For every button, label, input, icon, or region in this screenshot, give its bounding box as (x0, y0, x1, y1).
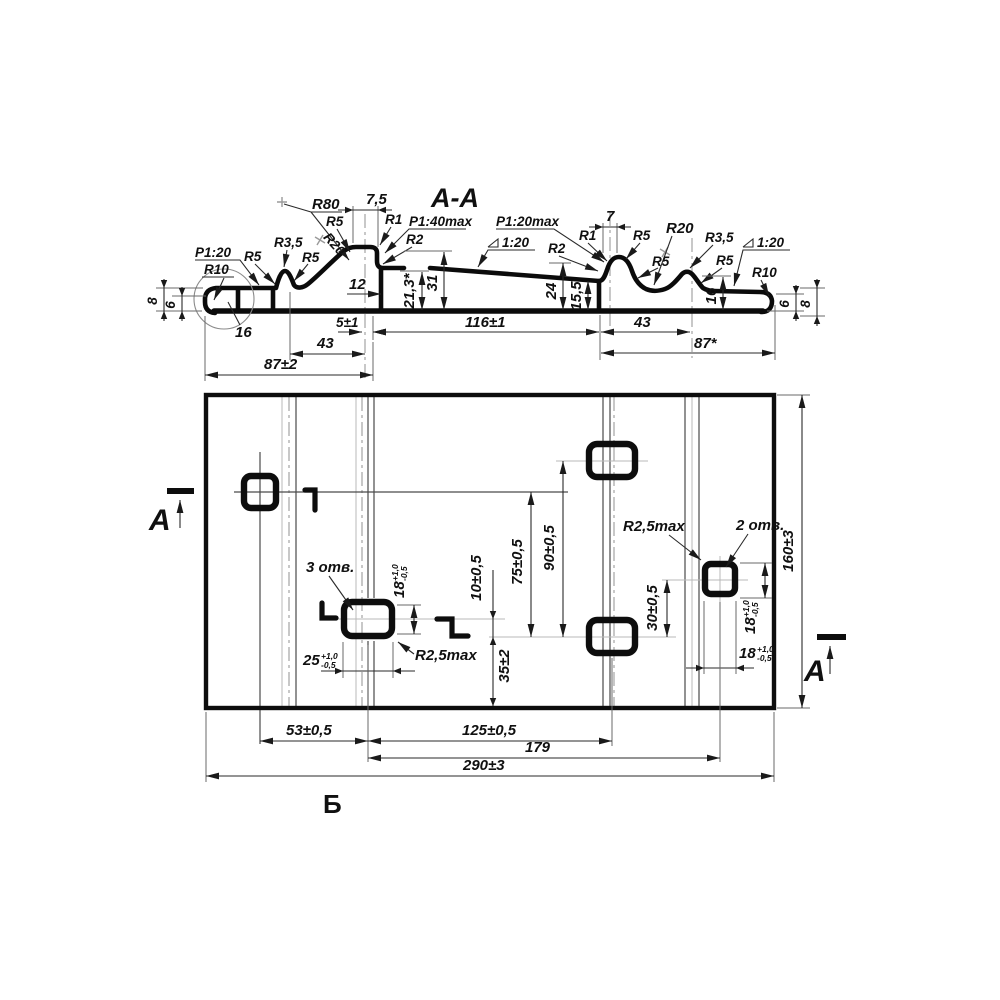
svg-text:18: 18 (739, 645, 756, 662)
svg-text:R2,5max: R2,5max (623, 518, 685, 535)
dim-15-5: 15,5 (568, 281, 588, 311)
svg-text:18: 18 (391, 581, 408, 598)
label-r5-a: R5 (244, 249, 275, 284)
profile-right-outline (599, 257, 772, 312)
svg-text:30±0,5: 30±0,5 (644, 584, 661, 630)
svg-text:8: 8 (145, 297, 160, 305)
radius-r35-label: R3,5 (705, 230, 734, 245)
dim-8-right: 8 (798, 279, 825, 326)
label-r2-left: R2 (383, 232, 424, 264)
svg-text:R2,5max: R2,5max (415, 647, 477, 664)
incline-surface (430, 268, 599, 281)
svg-text:-0,5: -0,5 (399, 566, 409, 581)
svg-text:7: 7 (606, 208, 615, 225)
view-label-b: Б (323, 789, 342, 819)
radius-r1-label: R1 (579, 228, 596, 243)
svg-text:160±3: 160±3 (780, 530, 797, 572)
radius-r2-label: R2 (406, 232, 424, 247)
dim-43-right: 43 (601, 314, 690, 332)
label-r3-5-a: R3,5 (274, 235, 303, 267)
slope-1-20-label: 1:20 (757, 235, 785, 250)
svg-text:6: 6 (777, 300, 792, 308)
cut-marker-right: A (803, 637, 846, 688)
slope-p120-label: P1:20 (195, 245, 232, 260)
radius-r10-label: R10 (752, 265, 777, 280)
cut-marker-left: A (148, 491, 194, 537)
svg-text:87*: 87* (694, 335, 718, 352)
svg-text:24: 24 (543, 282, 560, 300)
svg-text:16: 16 (703, 287, 720, 304)
svg-text:125±0,5: 125±0,5 (462, 722, 517, 739)
svg-text:25: 25 (302, 652, 320, 669)
svg-text:2 отв.: 2 отв. (735, 517, 784, 534)
svg-text:31: 31 (424, 275, 441, 292)
plan-holes (244, 444, 735, 653)
svg-text:116±1: 116±1 (465, 314, 506, 331)
plan-view: A A 3 отв. R2,5max R2,5max 2 отв. (148, 395, 846, 819)
dim-18-hole5-v: 18 +1,0 -0,5 (740, 563, 772, 634)
dim-12: 12 (347, 276, 381, 294)
label-r5-e: R5 (638, 254, 670, 278)
svg-text:10±0,5: 10±0,5 (468, 554, 485, 600)
dim-30-05: 30±0,5 (644, 580, 667, 637)
dim-18-hole5-v-label: 18 +1,0 -0,5 (741, 600, 760, 634)
dim-5-1: 5±1 (336, 315, 388, 340)
svg-text:-0,5: -0,5 (321, 660, 336, 670)
slope-1-20-label: 1:20 (502, 235, 530, 250)
radius-r20-label: R20 (666, 220, 694, 237)
label-r1-left: R1 (380, 212, 402, 245)
slope-triangle-icon (743, 239, 753, 247)
radius-r5-label: R5 (244, 249, 262, 264)
cut-letter: A (148, 504, 171, 537)
svg-text:3 отв.: 3 отв. (306, 559, 354, 576)
label-r20-right: R20 (654, 220, 694, 285)
svg-text:8: 8 (798, 300, 813, 308)
radius-r1-label: R1 (385, 212, 402, 227)
svg-text:75±0,5: 75±0,5 (509, 538, 526, 584)
radius-r5-label: R5 (302, 250, 320, 265)
slope-p140max-label: P1:40max (409, 214, 473, 229)
radius-r5-label: R5 (652, 254, 670, 269)
svg-text:43: 43 (633, 314, 651, 331)
engineering-drawing: A-A P1:20 R10 R5 R3,5 R5 (0, 0, 1000, 1000)
dim-75-05: 75±0,5 (509, 492, 531, 637)
svg-text:12: 12 (349, 276, 366, 293)
dim-10-05: 10±0,5 35±2 (468, 554, 513, 706)
radius-r5-label: R5 (326, 214, 344, 229)
cut-jog-2 (322, 603, 336, 618)
svg-text:6: 6 (163, 301, 178, 309)
slope-p120max-label: P1:20max (496, 214, 560, 229)
dim-35-2: 35±2 (496, 649, 513, 683)
cut-jog-3 (437, 619, 468, 636)
plan-rib-lines (282, 397, 699, 706)
svg-text:-0,5: -0,5 (757, 653, 772, 663)
svg-text:-0,5: -0,5 (750, 602, 760, 617)
svg-text:43: 43 (316, 335, 334, 352)
svg-text:290±3: 290±3 (462, 757, 505, 774)
svg-text:90±0,5: 90±0,5 (541, 524, 558, 570)
note-r2-5max-right: R2,5max (623, 518, 701, 560)
svg-text:179: 179 (525, 739, 551, 756)
radius-r35-label: R3,5 (274, 235, 303, 250)
radius-r5-label: R5 (633, 228, 651, 243)
dim-90-05: 90±0,5 (541, 461, 563, 637)
cut-jog-1 (305, 490, 315, 510)
cut-letter: A (803, 655, 826, 688)
svg-text:87±2: 87±2 (264, 356, 298, 373)
center-mark-r80 (277, 197, 287, 207)
drawing-canvas: A-A P1:20 R10 R5 R3,5 R5 (0, 0, 1000, 1000)
label-slope-1-20-left: 1:20 (478, 235, 535, 267)
svg-text:5±1: 5±1 (336, 315, 358, 330)
svg-text:7,5: 7,5 (366, 191, 388, 208)
plate-outline (206, 395, 774, 708)
dim-24: 24 (543, 263, 571, 310)
dim-16-label: 16 (235, 324, 252, 341)
label-r5-d: R5 (626, 228, 651, 259)
section-title: A-A (430, 183, 479, 213)
svg-text:18: 18 (742, 617, 759, 634)
section-view: A-A P1:20 R10 R5 R3,5 R5 (145, 183, 825, 381)
label-r5-f: R5 (701, 253, 734, 283)
note-3-holes: 3 отв. (306, 559, 354, 610)
dim-116-1: 116±1 (373, 314, 600, 360)
svg-text:53±0,5: 53±0,5 (286, 722, 332, 739)
radius-r5-label: R5 (716, 253, 734, 268)
radius-r2-label: R2 (548, 241, 566, 256)
radius-r10-label: R10 (204, 262, 229, 277)
dim-18-hole3-label: 18 +1,0 -0,5 (390, 564, 409, 598)
note-r2-5max-left: R2,5max (398, 642, 477, 664)
slope-triangle-icon (488, 239, 498, 247)
dim-25-hole3: 25 +1,0 -0,5 (302, 642, 415, 678)
svg-text:15,5: 15,5 (568, 281, 585, 311)
radius-r80-label: R80 (312, 196, 340, 213)
svg-text:21,3*: 21,3* (401, 272, 418, 309)
